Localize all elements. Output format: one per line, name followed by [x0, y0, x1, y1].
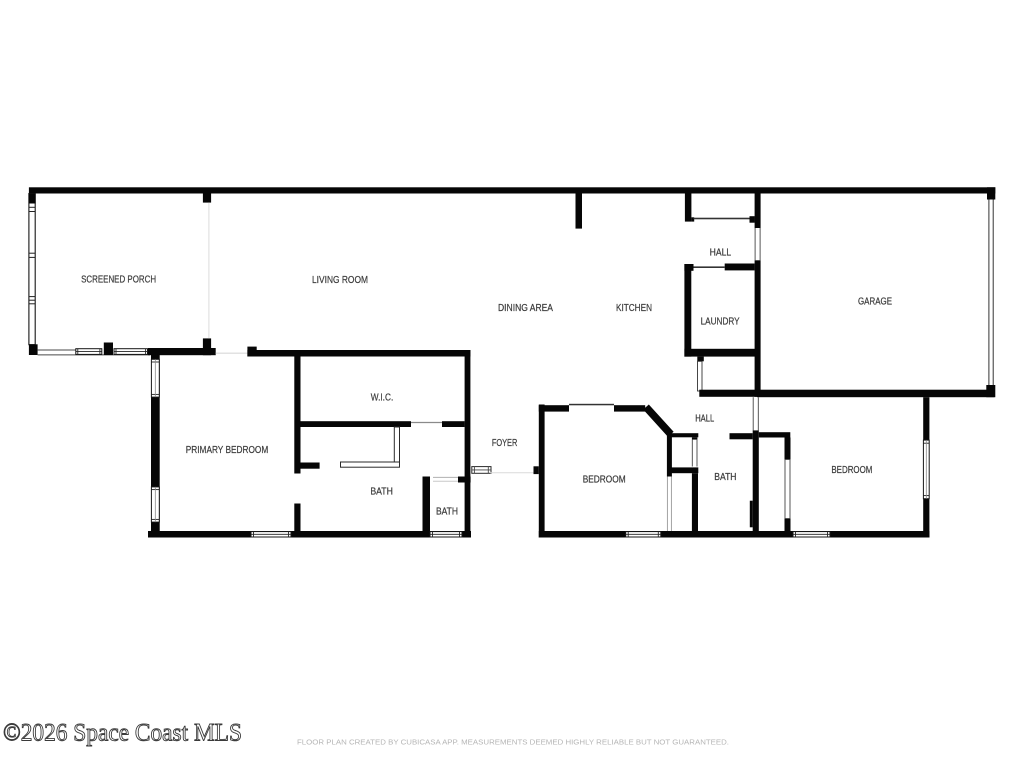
svg-text:LAUNDRY: LAUNDRY [701, 316, 740, 327]
svg-text:SCREENED PORCH: SCREENED PORCH [81, 274, 156, 285]
svg-text:©2026 Space Coast MLS: ©2026 Space Coast MLS [3, 718, 242, 747]
svg-text:DINING AREA: DINING AREA [498, 303, 553, 314]
svg-text:FLOOR PLAN CREATED BY CUBICASA: FLOOR PLAN CREATED BY CUBICASA APP. MEAS… [297, 738, 729, 747]
svg-text:FOYER: FOYER [492, 438, 518, 449]
svg-text:BATH: BATH [436, 507, 458, 518]
svg-text:BEDROOM: BEDROOM [583, 475, 626, 486]
svg-text:GARAGE: GARAGE [858, 297, 892, 308]
svg-text:LIVING ROOM: LIVING ROOM [312, 275, 368, 286]
svg-text:BEDROOM: BEDROOM [831, 465, 872, 476]
svg-text:HALL: HALL [710, 248, 732, 259]
svg-text:HALL: HALL [695, 414, 714, 425]
svg-text:BATH: BATH [370, 487, 393, 498]
svg-text:KITCHEN: KITCHEN [616, 303, 652, 314]
svg-text:PRIMARY BEDROOM: PRIMARY BEDROOM [186, 445, 269, 456]
svg-text:BATH: BATH [714, 472, 736, 483]
svg-text:W.I.C.: W.I.C. [371, 392, 394, 403]
